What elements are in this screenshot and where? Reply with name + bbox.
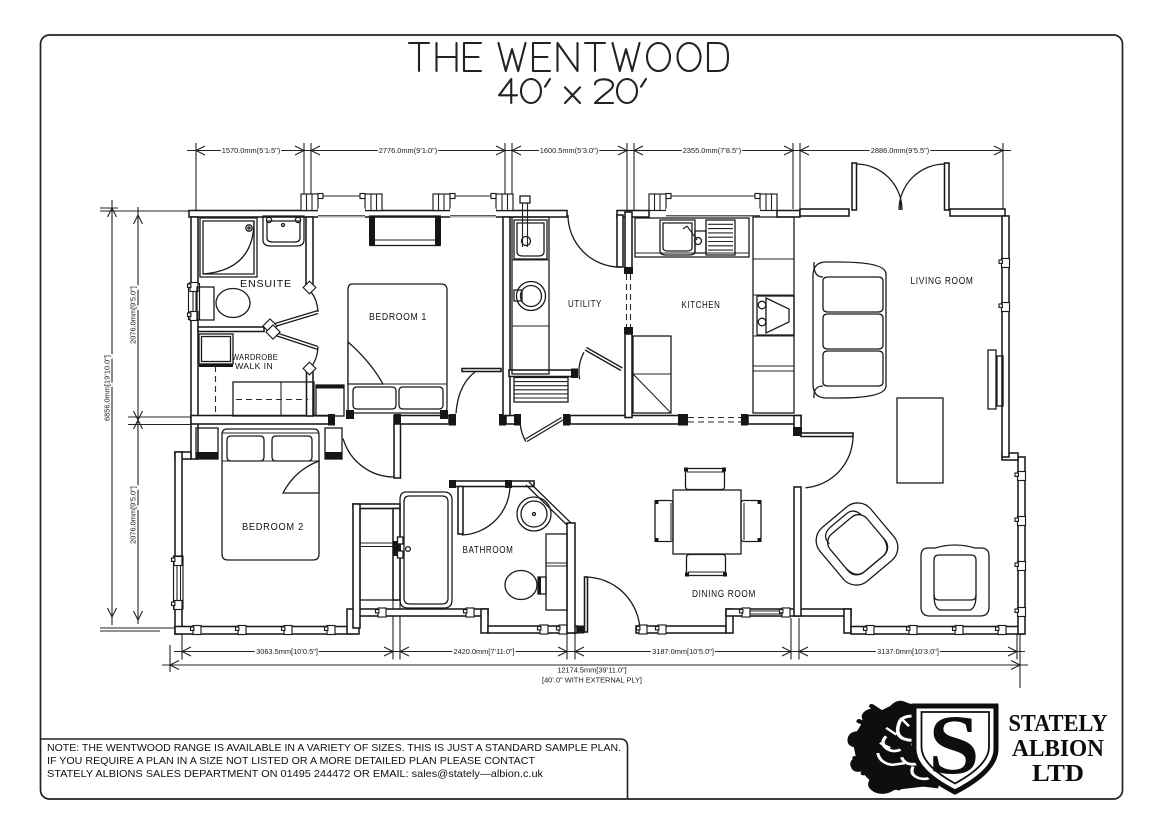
svg-text:2776.0mm(9’1.0"): 2776.0mm(9’1.0") [379,146,438,155]
svg-text:ALBION: ALBION [1012,736,1105,762]
svg-text:1600.5mm(5’3.0"): 1600.5mm(5’3.0") [540,146,599,155]
svg-text:BEDROOM 1: BEDROOM 1 [369,311,427,323]
svg-text:3063.5mm[10’0.5"]: 3063.5mm[10’0.5"] [256,647,318,656]
svg-text:WALK IN: WALK IN [235,362,273,371]
svg-text:UTILITY: UTILITY [568,298,602,310]
svg-text:3137.0mm[10’3.0"]: 3137.0mm[10’3.0"] [877,647,939,656]
svg-text:WARDROBE: WARDROBE [232,353,278,362]
svg-text:2355.0mm(7’8.5"): 2355.0mm(7’8.5") [683,146,742,155]
svg-text:ENSUITE: ENSUITE [240,278,292,290]
svg-text:12174.5mm[39’11.0"]: 12174.5mm[39’11.0"] [557,666,626,675]
svg-text:LTD: LTD [1032,761,1084,787]
svg-text:S: S [928,698,979,792]
svg-text:[40’.0" WITH EXTERNAL PLY]: [40’.0" WITH EXTERNAL PLY] [542,676,642,685]
svg-text:LIVING ROOM: LIVING ROOM [911,275,974,287]
svg-text:3187.0mm[10’5.0"]: 3187.0mm[10’5.0"] [652,647,714,656]
svg-text:2076.0mm[9’5.0"]: 2076.0mm[9’5.0"] [129,286,138,344]
svg-text:BATHROOM: BATHROOM [463,544,514,556]
svg-text:2886.0mm(9’5.5"): 2886.0mm(9’5.5") [871,146,930,155]
svg-text:2420.0mm[7’11.0"]: 2420.0mm[7’11.0"] [453,647,514,656]
svg-text:BEDROOM 2: BEDROOM 2 [242,521,304,533]
svg-text:IF YOU REQUIRE A PLAN IN A SIZ: IF YOU REQUIRE A PLAN IN A SIZE NOT LIST… [47,756,536,767]
svg-text:NOTE: THE WENTWOOD RANGE IS AV: NOTE: THE WENTWOOD RANGE IS AVAILABLE IN… [47,743,621,754]
svg-text:1570.0mm(5’1.5"): 1570.0mm(5’1.5") [222,146,281,155]
svg-text:6856.0mm[19’10.0"]: 6856.0mm[19’10.0"] [103,355,112,421]
svg-text:DINING ROOM: DINING ROOM [692,588,756,600]
svg-text:KITCHEN: KITCHEN [682,299,721,311]
svg-text:STATELY: STATELY [1009,711,1108,737]
svg-text:2076.0mm[9’5.0"]: 2076.0mm[9’5.0"] [129,486,138,544]
svg-text:STATELY ALBIONS SALES DEPARTME: STATELY ALBIONS SALES DEPARTMENT ON 0149… [47,769,544,780]
